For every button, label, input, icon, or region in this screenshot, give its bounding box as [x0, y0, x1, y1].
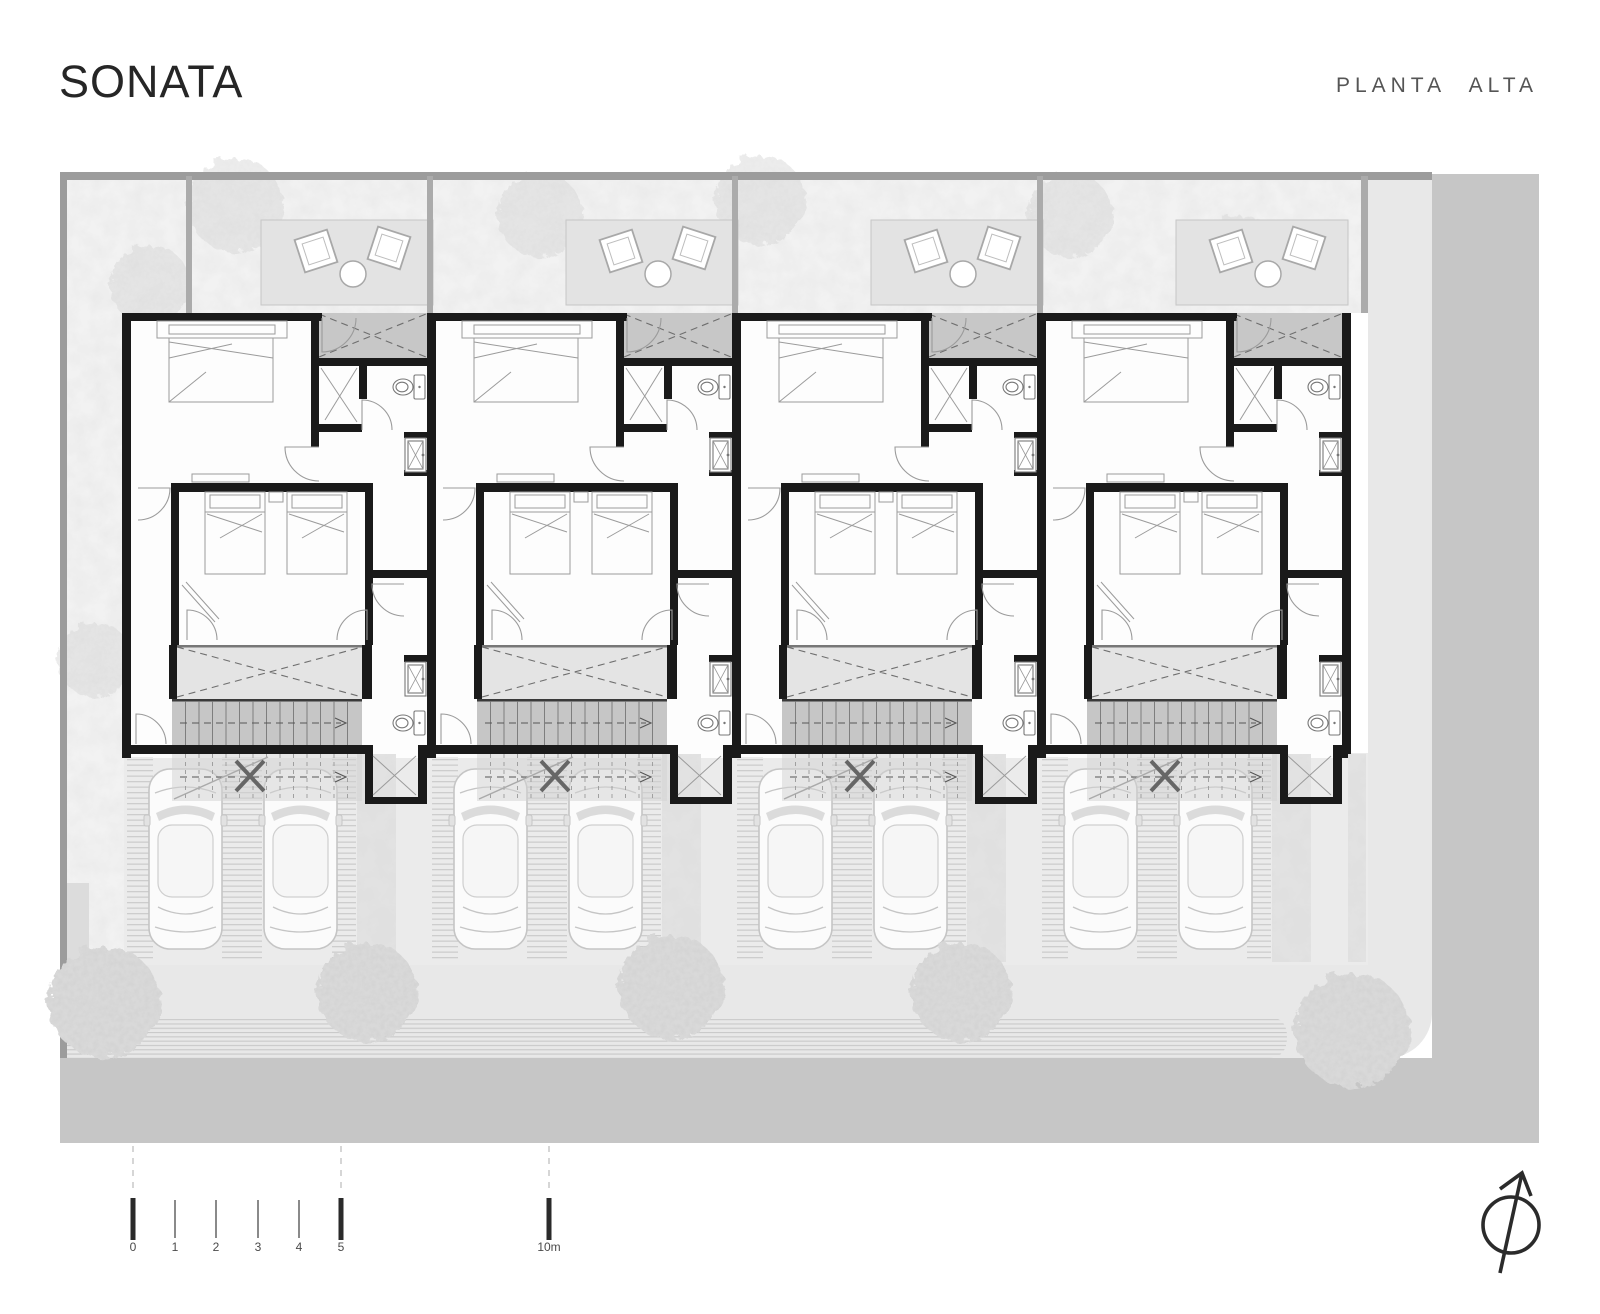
scale-tick-label: 5: [338, 1240, 345, 1254]
site-border-left: [60, 172, 67, 1058]
end-party-wall: [1342, 313, 1351, 758]
unit-plan-2: [427, 220, 738, 962]
tree: [619, 935, 724, 1040]
garden-divider: [186, 176, 192, 313]
scale-tick-label: 4: [296, 1240, 303, 1254]
tree: [1295, 973, 1410, 1088]
unit-plan-3: [732, 220, 1043, 962]
scale-tick-label: 10m: [537, 1240, 560, 1254]
scale-bar: [131, 1146, 552, 1240]
garden-divider: [1361, 176, 1368, 313]
scale-tick-label: 2: [213, 1240, 220, 1254]
garden-divider: [732, 176, 738, 313]
scale-tick-label: 0: [130, 1240, 137, 1254]
garden-divider: [427, 176, 433, 313]
tree: [911, 942, 1011, 1042]
site-plan: [48, 155, 1539, 1143]
scale-tick-label: 1: [172, 1240, 179, 1254]
north-arrow-icon: [1483, 1173, 1539, 1273]
garden-divider: [1037, 176, 1043, 313]
unit-plan-1: [122, 220, 433, 962]
hedge-strip: [1348, 754, 1366, 962]
tree: [317, 942, 417, 1042]
site-border-top: [60, 172, 1432, 180]
tree: [48, 946, 160, 1058]
drawing-sheet: SONATA PLANTA ALTA: [0, 0, 1600, 1314]
floor-plan-canvas: [0, 0, 1600, 1314]
unit-plan-4: [1037, 220, 1348, 962]
street-right: [1432, 174, 1539, 1143]
scale-tick-label: 3: [255, 1240, 262, 1254]
